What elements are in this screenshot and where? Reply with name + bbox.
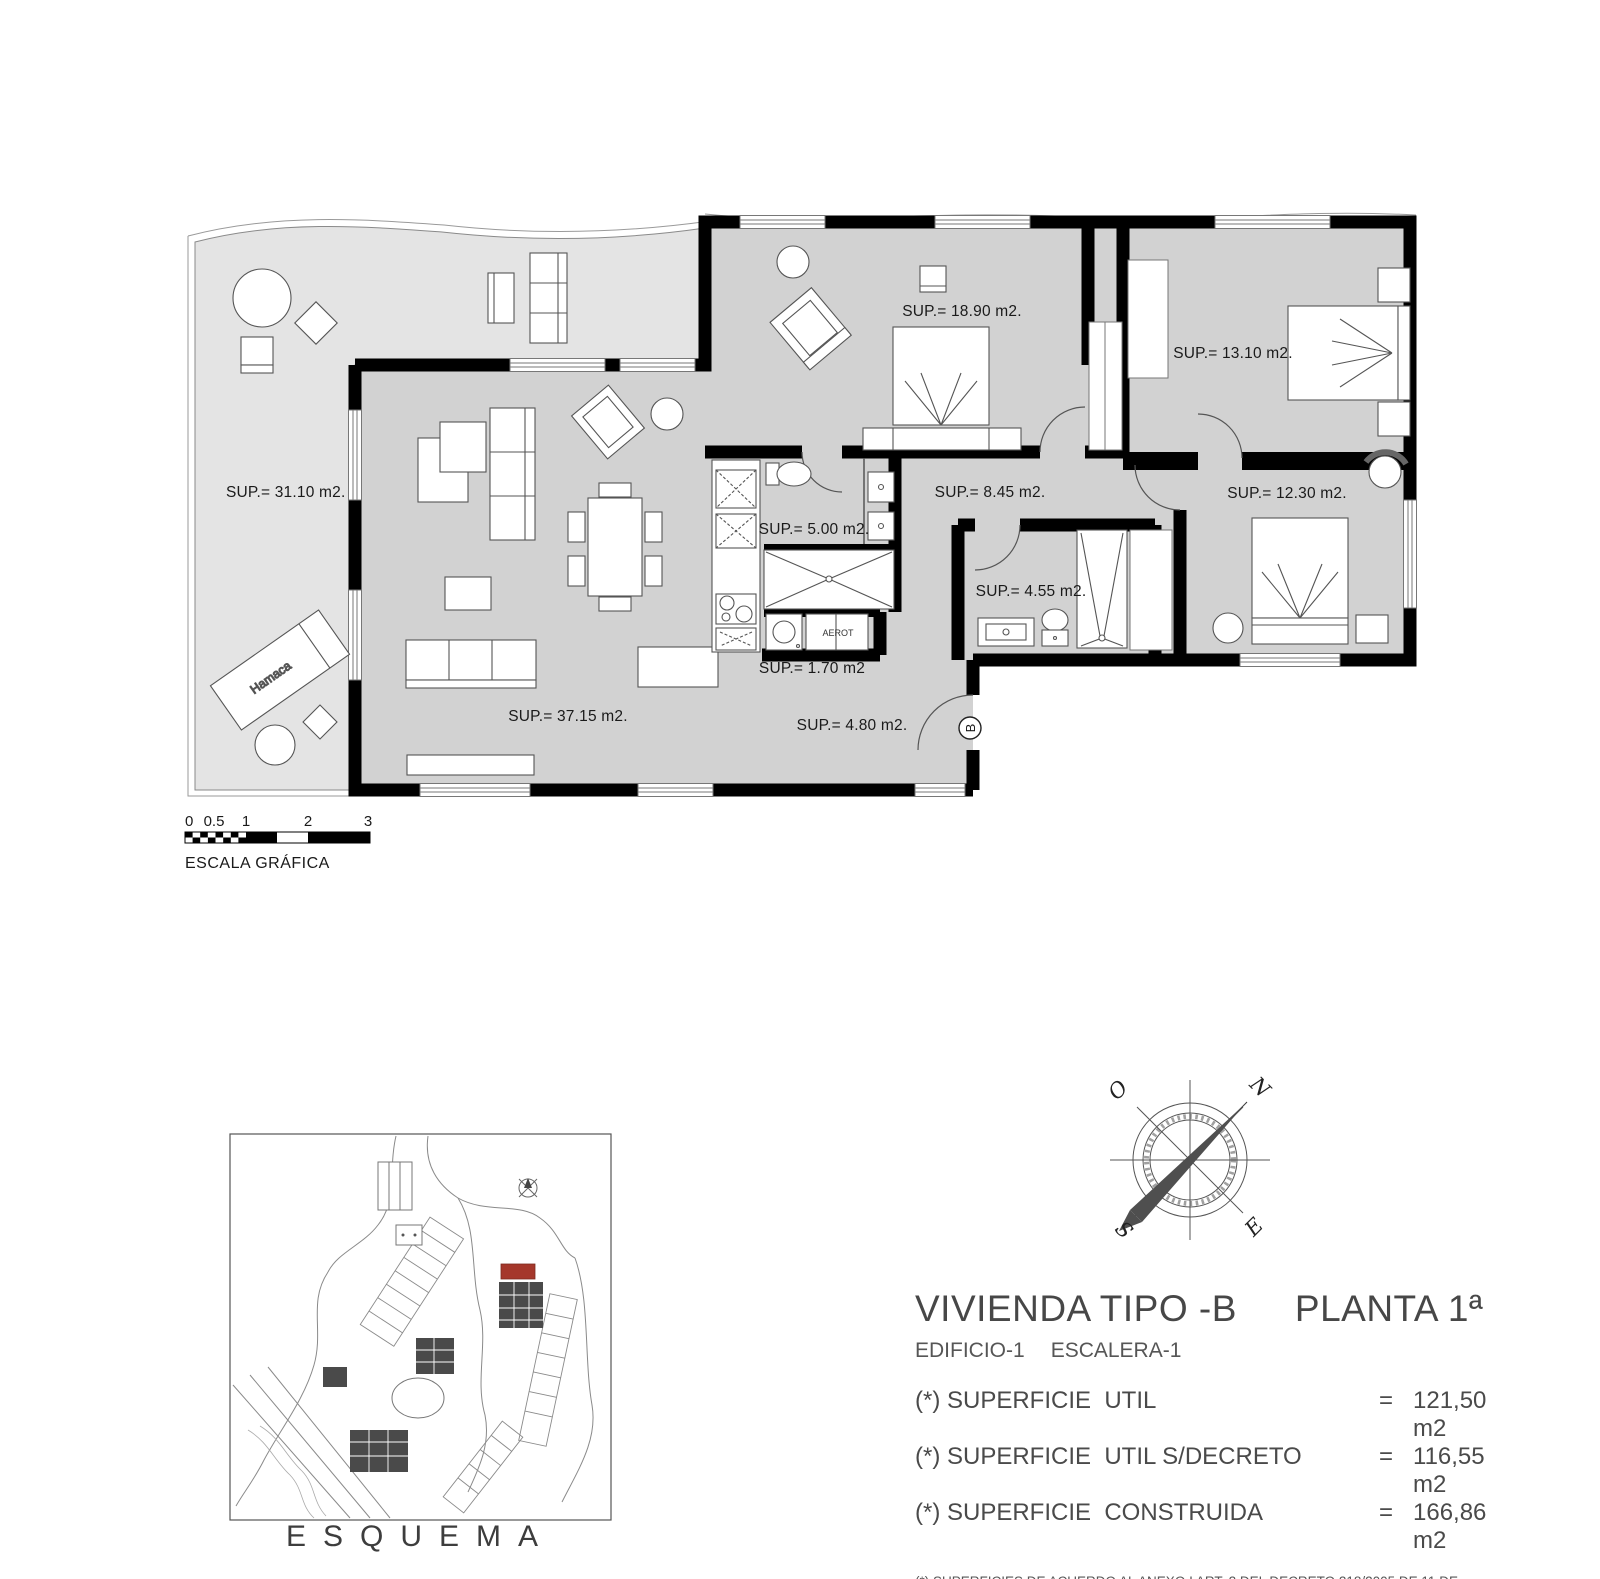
compass-n: N (1244, 1071, 1275, 1102)
site-plan (228, 1130, 618, 1525)
label-living: SUP.= 37.15 m2. (508, 708, 627, 725)
footnote: (*) SUPERFICIES DE ACUERDO AL ANEXO I AR… (915, 1572, 1475, 1579)
label-bedroom1: SUP.= 18.90 m2. (902, 303, 1021, 320)
area-row-util: (*) SUPERFICIE UTIL=121,50 m2 (915, 1387, 1475, 1443)
building-label: EDIFICIO-1 (915, 1339, 1025, 1362)
scale-caption: ESCALA GRÁFICA (185, 853, 330, 872)
plan-title-floor: PLANTA 1ª (1295, 1288, 1483, 1329)
scale-tick: 0.5 (204, 813, 225, 830)
plan-title-type: VIVIENDA TIPO -B (915, 1288, 1237, 1329)
area-row-util-decreto: (*) SUPERFICIE UTIL S/DECRETO=116,55 m2 (915, 1443, 1475, 1499)
plan-title: VIVIENDA TIPO -BPLANTA 1ª (915, 1288, 1475, 1330)
label-entry: SUP.= 4.80 m2. (797, 717, 908, 734)
area-row-construida: (*) SUPERFICIE CONSTRUIDA=166,86 m2 (915, 1499, 1475, 1555)
compass-o: O (1103, 1075, 1132, 1104)
label-laundry: SUP.= 1.70 m2 (759, 660, 865, 677)
scale-tick: 2 (304, 813, 312, 830)
label-bedroom2: SUP.= 13.10 m2. (1173, 345, 1292, 362)
label-terrace: SUP.= 31.10 m2. (226, 484, 345, 501)
compass-rose-icon: N O S E (1075, 1040, 1305, 1280)
footnote-line1: (*) SUPERFICIES DE ACUERDO AL ANEXO I AR… (915, 1572, 1475, 1579)
stair-label: ESCALERA-1 (1051, 1339, 1182, 1362)
label-bathroom1: SUP.= 5.00 m2. (759, 521, 870, 538)
label-bedroom3: SUP.= 12.30 m2. (1227, 485, 1346, 502)
highlighted-building (501, 1264, 535, 1279)
area-summary: (*) SUPERFICIE UTIL=121,50 m2 (*) SUPERF… (915, 1387, 1475, 1555)
scale-tick: 1 (242, 813, 250, 830)
scale-bar: 0 0.5 1 2 3 ESCALA GRÁFICA (185, 813, 372, 872)
title-block: VIVIENDA TIPO -BPLANTA 1ª EDIFICIO-1ESCA… (915, 1288, 1475, 1579)
label-aerot: AEROT (822, 628, 854, 638)
compass-needle (1119, 1102, 1247, 1231)
compass-e: E (1239, 1213, 1268, 1242)
scale-tick: 3 (364, 813, 372, 830)
entrance-marker-letter: B (963, 724, 978, 733)
scale-tick: 0 (185, 813, 193, 830)
blueprint-page: Hamaca (0, 0, 1600, 1579)
esquema-caption: ESQUEMA (286, 1520, 555, 1554)
entrance-marker: B (959, 717, 981, 739)
label-hall: SUP.= 8.45 m2. (935, 484, 1046, 501)
plan-subtitle: EDIFICIO-1ESCALERA-1 (915, 1339, 1475, 1363)
label-bathroom2: SUP.= 4.55 m2. (976, 583, 1087, 600)
floor-plan: Hamaca (180, 200, 1460, 880)
